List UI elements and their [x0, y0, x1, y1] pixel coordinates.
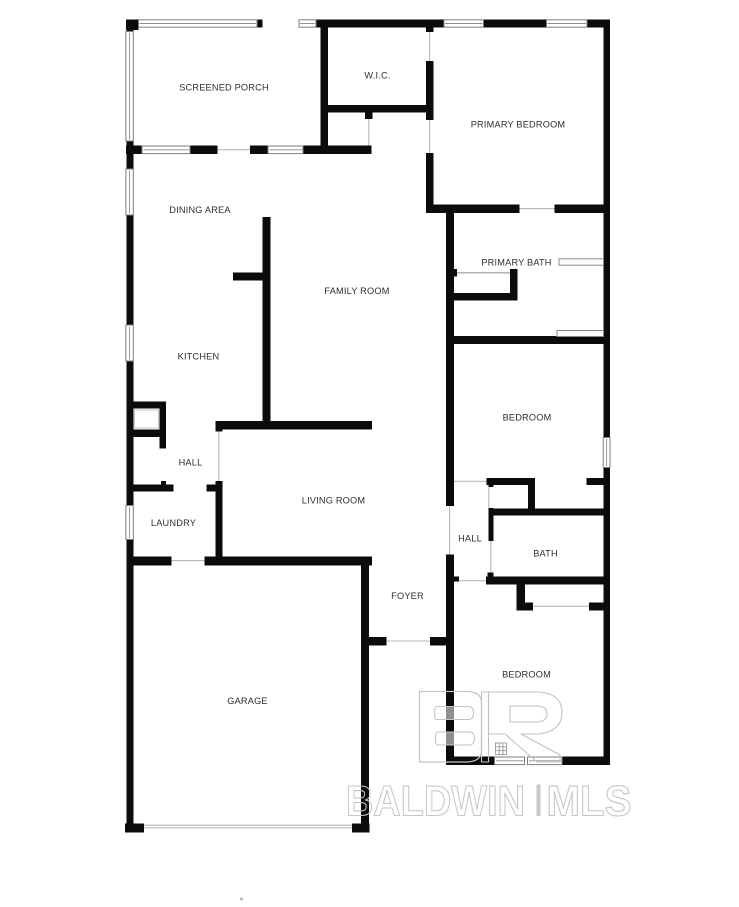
svg-text:BEDROOM: BEDROOM [503, 412, 552, 422]
svg-text:PRIMARY BEDROOM: PRIMARY BEDROOM [471, 119, 566, 129]
svg-text:KITCHEN: KITCHEN [178, 351, 220, 361]
svg-text:DINING AREA: DINING AREA [169, 205, 231, 215]
svg-text:FOYER: FOYER [391, 591, 424, 601]
svg-text:W.I.C.: W.I.C. [364, 70, 390, 80]
svg-text:PRIMARY BATH: PRIMARY BATH [481, 257, 551, 267]
svg-text:LIVING ROOM: LIVING ROOM [302, 495, 365, 505]
svg-text:FAMILY ROOM: FAMILY ROOM [324, 286, 389, 296]
svg-text:BATH: BATH [533, 548, 558, 558]
svg-text:BALDWIN: BALDWIN [346, 778, 525, 826]
svg-text:BEDROOM: BEDROOM [502, 669, 551, 679]
svg-text:HALL: HALL [458, 533, 482, 543]
svg-text:HALL: HALL [179, 457, 203, 467]
svg-text:LAUNDRY: LAUNDRY [151, 518, 196, 528]
svg-text:GARAGE: GARAGE [227, 696, 268, 706]
svg-text:SCREENED PORCH: SCREENED PORCH [179, 82, 269, 92]
svg-text:MLS: MLS [547, 778, 632, 826]
